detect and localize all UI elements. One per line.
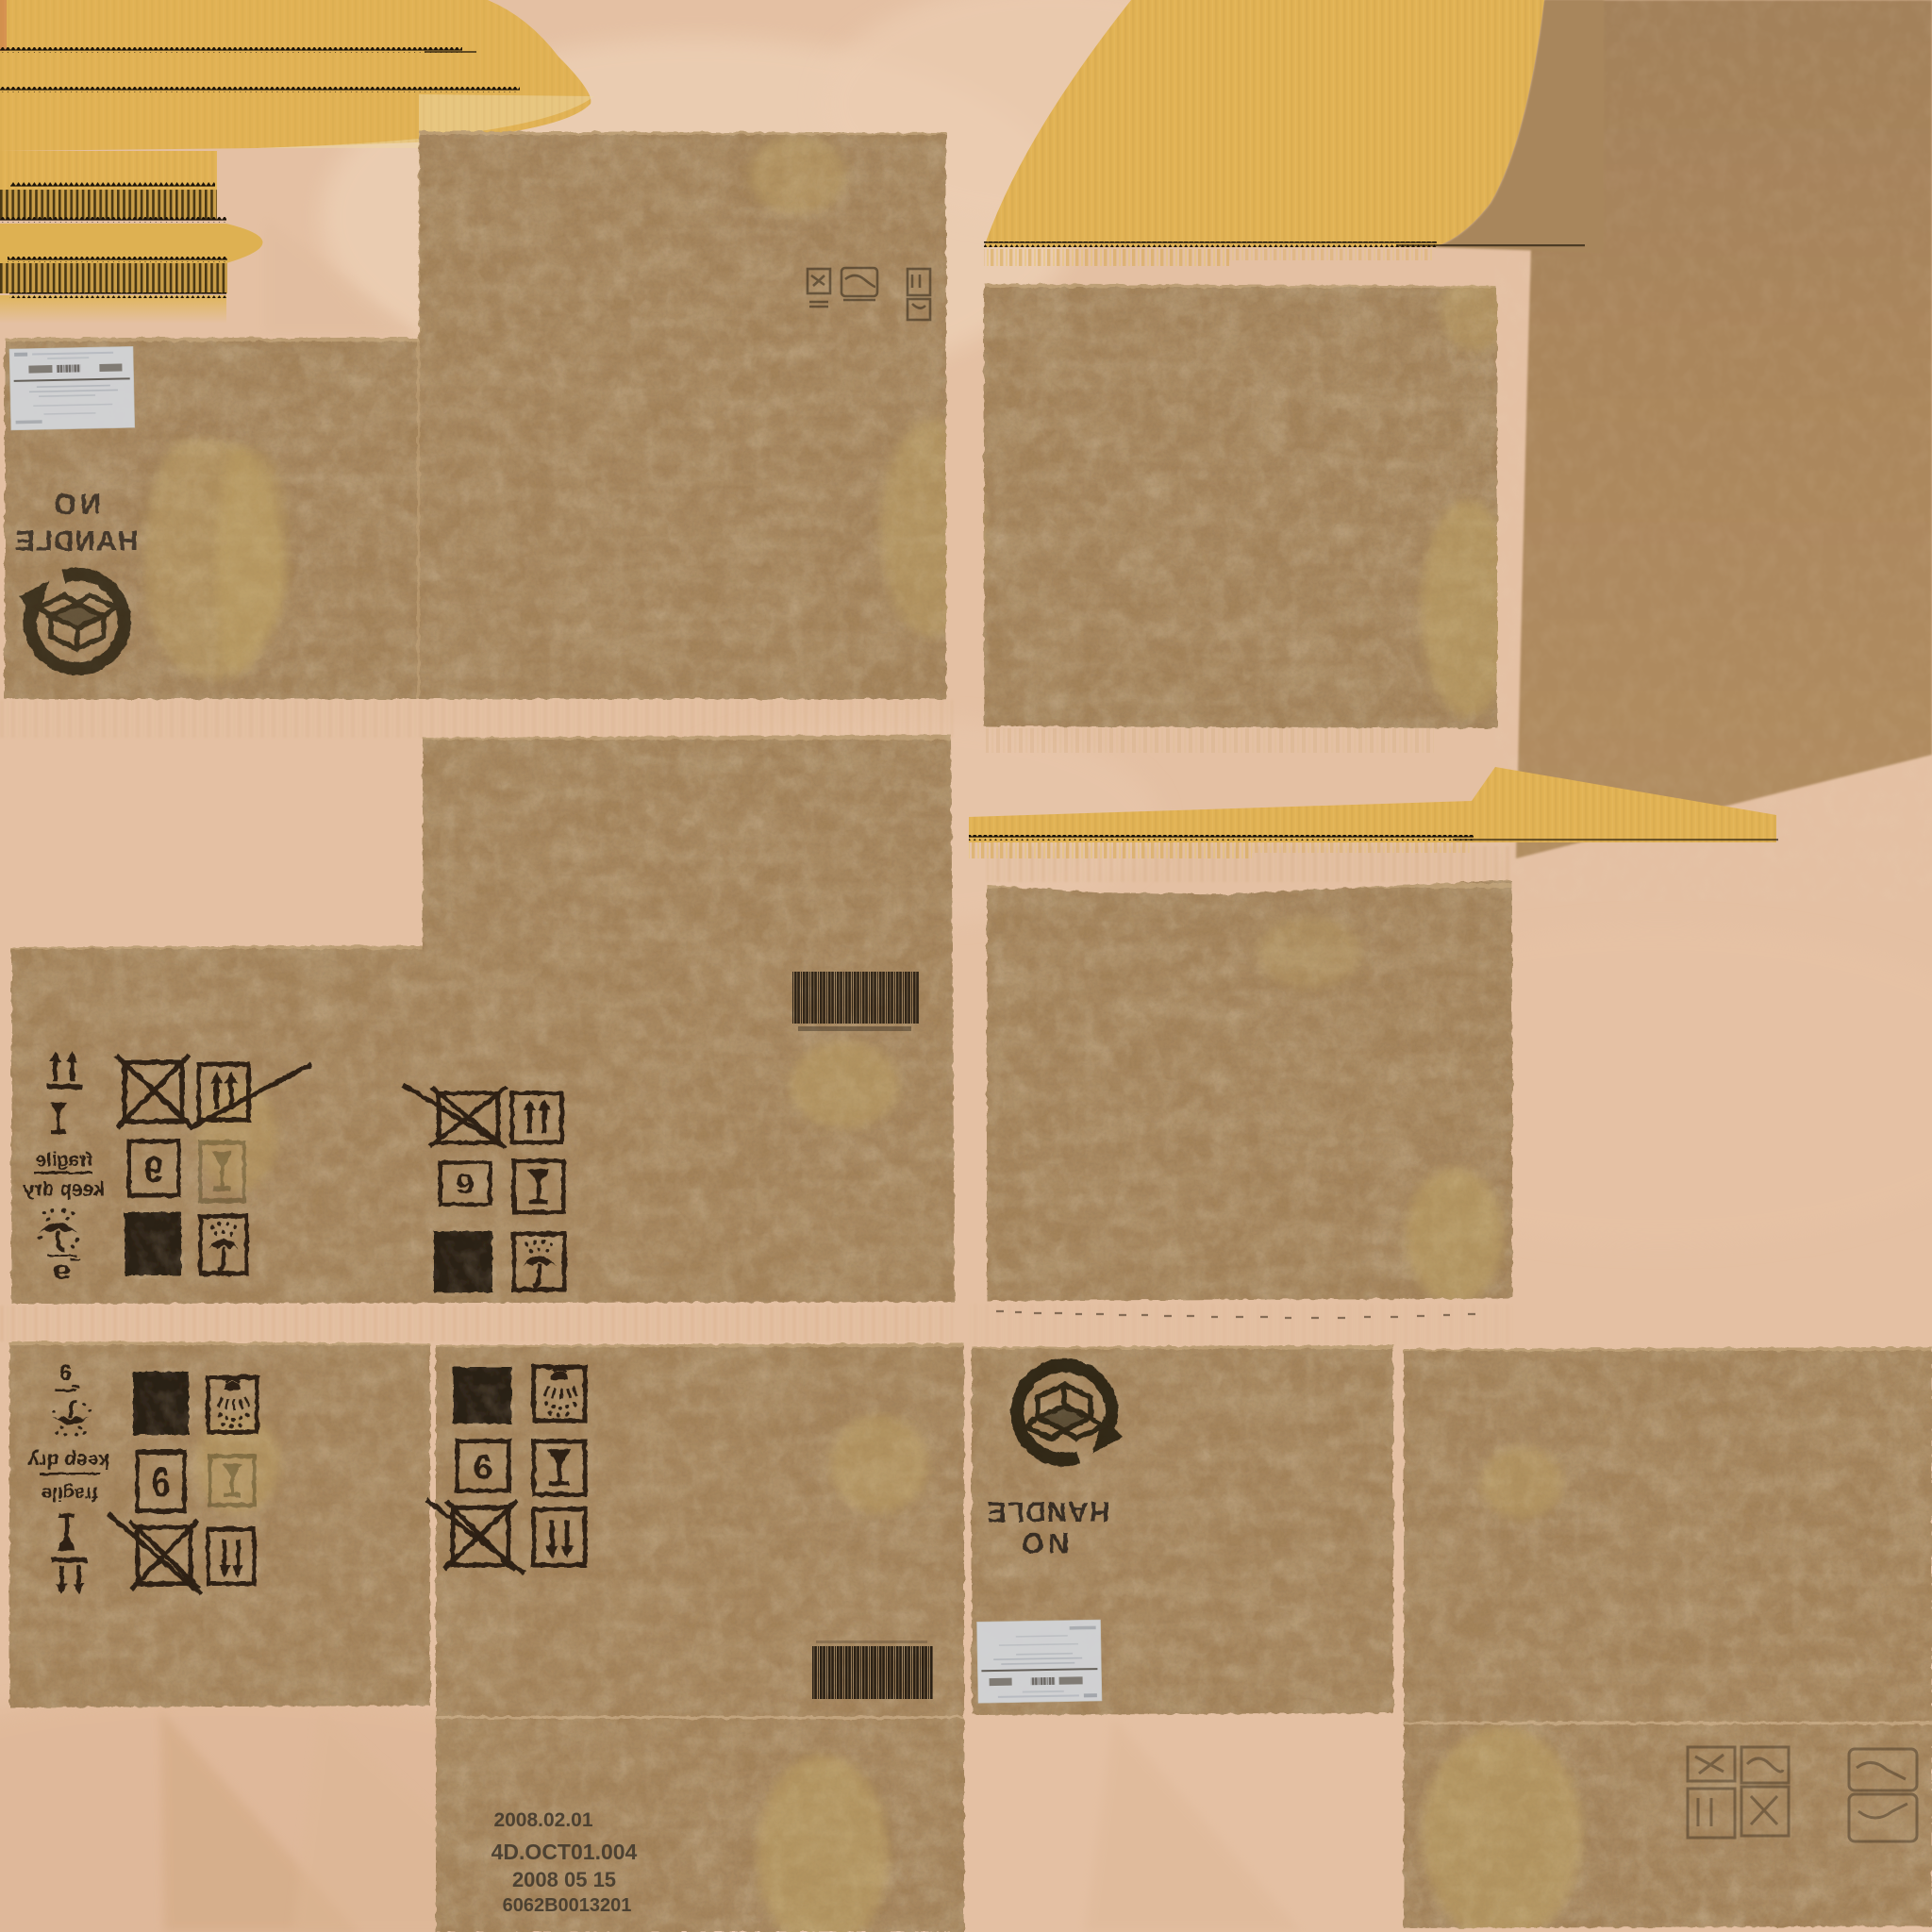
svg-text:fragile: fragile (36, 1150, 92, 1171)
svg-text:2008.02.01: 2008.02.01 (493, 1809, 592, 1831)
svg-text:keep dry: keep dry (23, 1179, 105, 1201)
svg-text:keep dry: keep dry (27, 1450, 109, 1472)
svg-text:4D.OCT01.004: 4D.OCT01.004 (491, 1840, 638, 1864)
svg-text:2008 05 15: 2008 05 15 (512, 1868, 616, 1891)
svg-text:NO: NO (50, 488, 102, 521)
svg-text:HANDLE: HANDLE (987, 1496, 1110, 1527)
svg-text:fragile: fragile (42, 1483, 98, 1504)
svg-text:6062B0013201: 6062B0013201 (503, 1895, 632, 1916)
svg-text:HANDLE: HANDLE (15, 526, 139, 558)
svg-text:NO: NO (1018, 1527, 1070, 1560)
